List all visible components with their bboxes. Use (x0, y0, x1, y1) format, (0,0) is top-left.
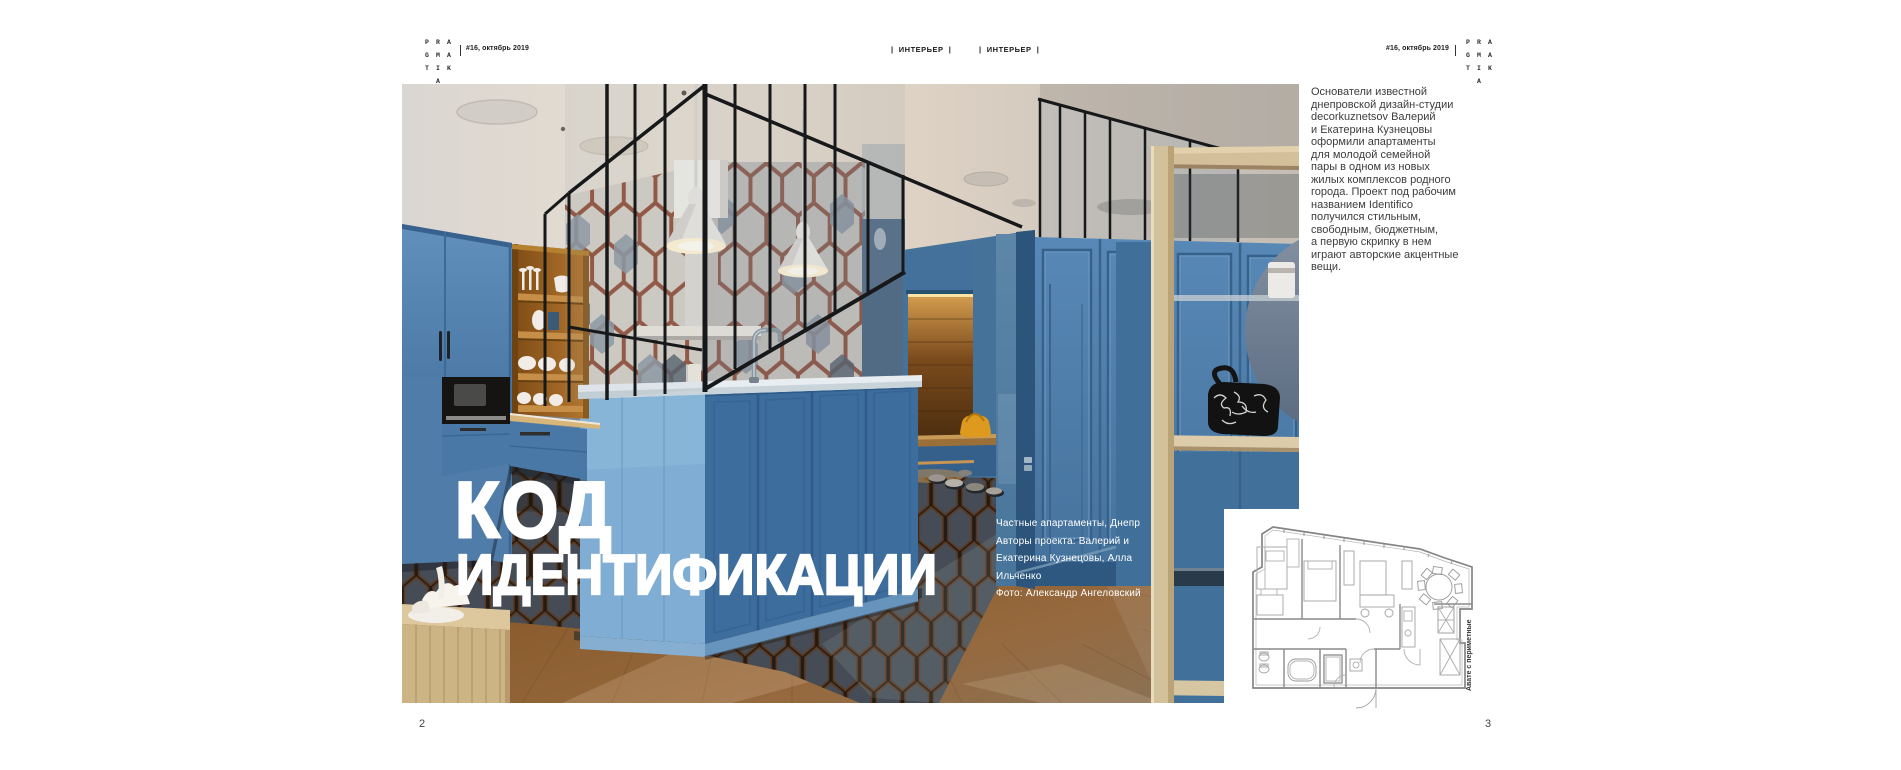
svg-text:Авате с периметные: Авате с периметные (1466, 619, 1473, 691)
